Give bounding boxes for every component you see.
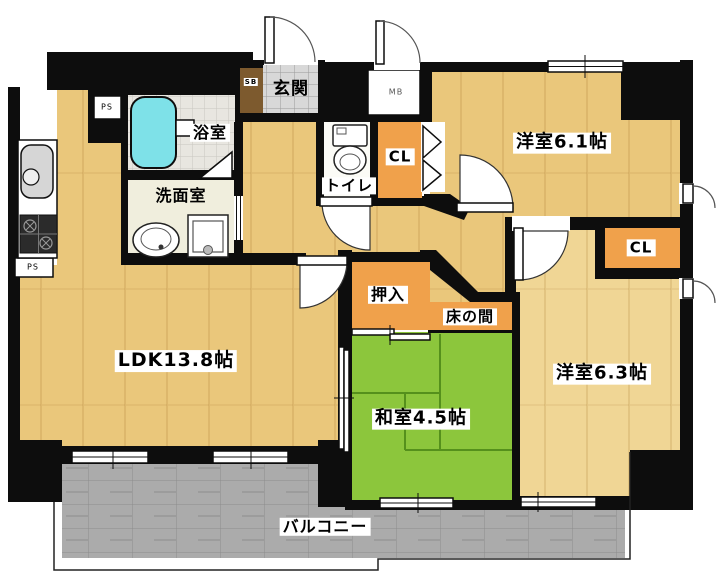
label-bedroom2: 洋室6.3帖: [553, 364, 651, 385]
shoe-box: [240, 68, 263, 113]
kitchen-stove: [20, 215, 57, 253]
label-shoe-box: SB: [244, 78, 258, 86]
label-closet2: CL: [627, 239, 656, 256]
label-bathroom: 浴室: [190, 124, 230, 142]
label-ldk: LDK13.8帖: [115, 350, 237, 372]
bathtub: [131, 97, 176, 168]
floor-plan: LDK13.8帖 和室4.5帖 洋室6.1帖 洋室6.3帖 玄関 浴室 洗面室 …: [0, 0, 720, 576]
label-oshiire: 押入: [368, 286, 408, 304]
floor-plan-drawing: [0, 0, 720, 576]
label-washitsu: 和室4.5帖: [372, 409, 470, 430]
closet1-folding-doors: [421, 122, 445, 192]
label-toilet: トイレ: [322, 177, 376, 194]
label-closet1: CL: [386, 148, 415, 165]
label-tokonoma: 床の間: [443, 308, 497, 325]
washbasin: [133, 223, 179, 257]
label-bedroom1: 洋室6.1帖: [513, 133, 611, 154]
label-meter-box: MB: [386, 87, 406, 96]
washing-machine: [188, 215, 228, 257]
label-pipe-space-2: PS: [24, 262, 42, 271]
label-genkan: 玄関: [270, 80, 312, 100]
kitchen-counter: [18, 140, 57, 258]
label-balcony: バルコニー: [280, 518, 371, 536]
washroom-door: [234, 196, 243, 240]
floor-hall-entrance: [243, 118, 322, 265]
label-pipe-space-1: PS: [98, 102, 116, 111]
label-washroom: 洗面室: [152, 187, 209, 205]
